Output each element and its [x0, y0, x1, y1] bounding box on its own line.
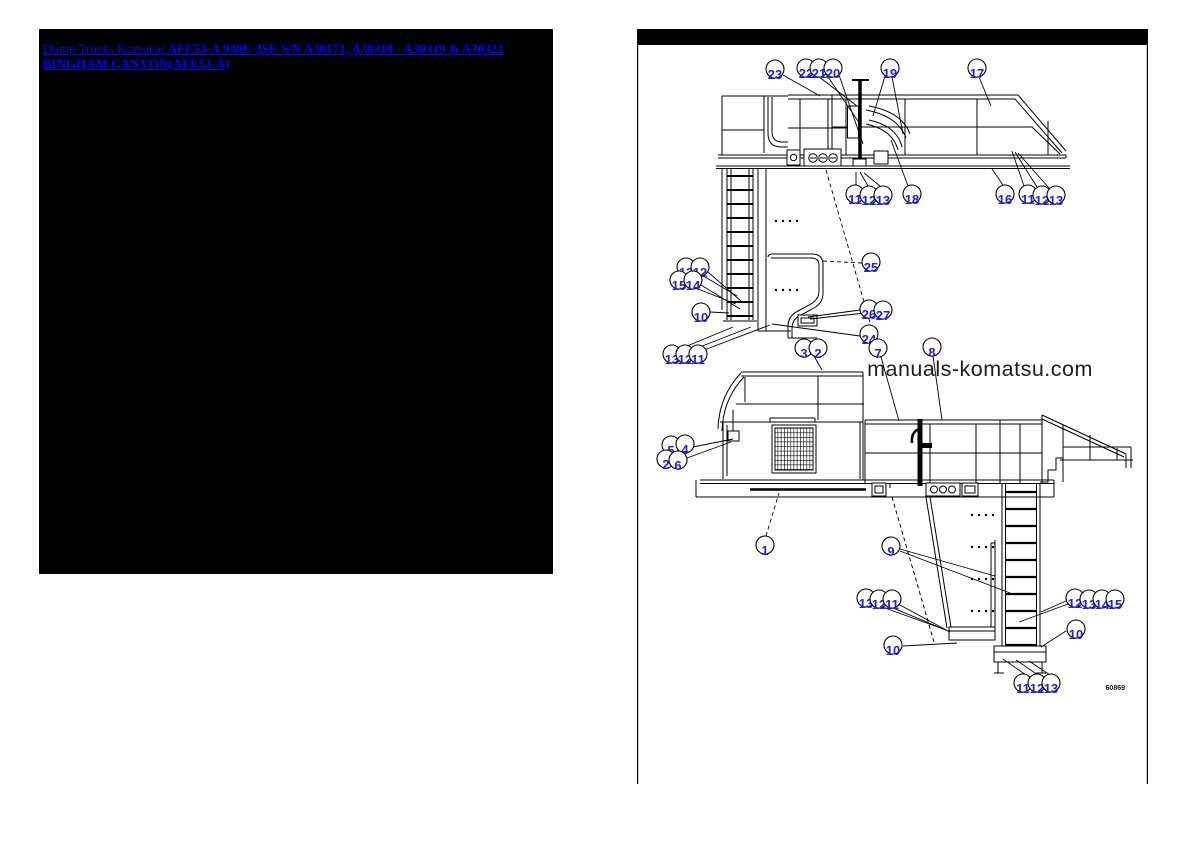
svg-text:15: 15: [1108, 597, 1122, 612]
svg-text:2: 2: [814, 346, 821, 361]
svg-text:14: 14: [686, 278, 701, 293]
callout-13[interactable]: 13: [874, 186, 892, 208]
svg-text:1: 1: [761, 543, 768, 558]
catalog-header-panel: Dump Trucks Komatsu AFE53-A 930E-3SE S/N…: [39, 29, 553, 574]
svg-text:13: 13: [1049, 193, 1063, 208]
svg-text:3: 3: [800, 346, 807, 361]
svg-text:17: 17: [970, 66, 984, 81]
svg-text:10: 10: [1069, 627, 1083, 642]
right-assembly: [865, 415, 1133, 673]
model-breadcrumb-link[interactable]: Dump Trucks Komatsu AFE53-A 930E-3SE S/N…: [43, 41, 539, 71]
callout-10[interactable]: 10: [692, 303, 710, 325]
svg-text:6: 6: [674, 458, 681, 473]
callout-6[interactable]: 6: [669, 451, 687, 473]
svg-text:11: 11: [885, 597, 899, 612]
callout-10[interactable]: 10: [1067, 620, 1085, 642]
svg-text:11: 11: [691, 352, 705, 367]
callout-9[interactable]: 9: [882, 537, 900, 559]
callout-1[interactable]: 1: [756, 536, 774, 558]
callout-27[interactable]: 27: [874, 301, 892, 323]
watermark: manuals-komatsu.com: [867, 357, 1093, 381]
callout-23[interactable]: 23: [766, 60, 784, 82]
callout-2[interactable]: 2: [809, 339, 827, 361]
svg-text:16: 16: [998, 192, 1012, 207]
diagram-panel: manuals-komatsu.com 60869 23222120191711…: [637, 29, 1148, 790]
callout-13[interactable]: 13: [1047, 186, 1065, 208]
callout-17[interactable]: 17: [968, 59, 986, 81]
top-pole: [848, 79, 870, 166]
parts-diagram: manuals-komatsu.com 60869 23222120191711…: [637, 29, 1148, 790]
svg-text:10: 10: [886, 643, 900, 658]
callout-11[interactable]: 11: [689, 345, 707, 367]
callout-20[interactable]: 20: [824, 59, 842, 81]
svg-text:18: 18: [905, 192, 919, 207]
diagram-header-bar: [637, 29, 1148, 45]
svg-text:25: 25: [864, 260, 878, 275]
svg-text:23: 23: [768, 67, 782, 82]
svg-text:9: 9: [887, 544, 894, 559]
breadcrumb-prefix: Dump Trucks Komatsu: [43, 41, 168, 56]
diagram-border: [638, 29, 1148, 784]
callout-16[interactable]: 16: [996, 185, 1014, 207]
callout-18[interactable]: 18: [903, 185, 921, 207]
svg-text:10: 10: [694, 310, 708, 325]
drawing-number: 60869: [1106, 685, 1126, 692]
svg-text:27: 27: [876, 308, 890, 323]
callout-15[interactable]: 15: [1106, 590, 1124, 612]
svg-text:8: 8: [928, 345, 935, 360]
svg-text:13: 13: [876, 193, 890, 208]
callout-11[interactable]: 11: [883, 590, 901, 612]
svg-text:19: 19: [883, 66, 897, 81]
svg-text:7: 7: [874, 346, 881, 361]
callout-13[interactable]: 13: [1042, 674, 1060, 696]
svg-text:20: 20: [826, 66, 840, 81]
callout-25[interactable]: 25: [862, 253, 880, 275]
top-platform-assembly: [716, 95, 1070, 338]
rivet-dots-top: [775, 220, 798, 291]
callout-14[interactable]: 14: [684, 271, 702, 293]
callout-10[interactable]: 10: [884, 636, 902, 658]
callout-19[interactable]: 19: [881, 59, 899, 81]
svg-text:13: 13: [1044, 681, 1058, 696]
